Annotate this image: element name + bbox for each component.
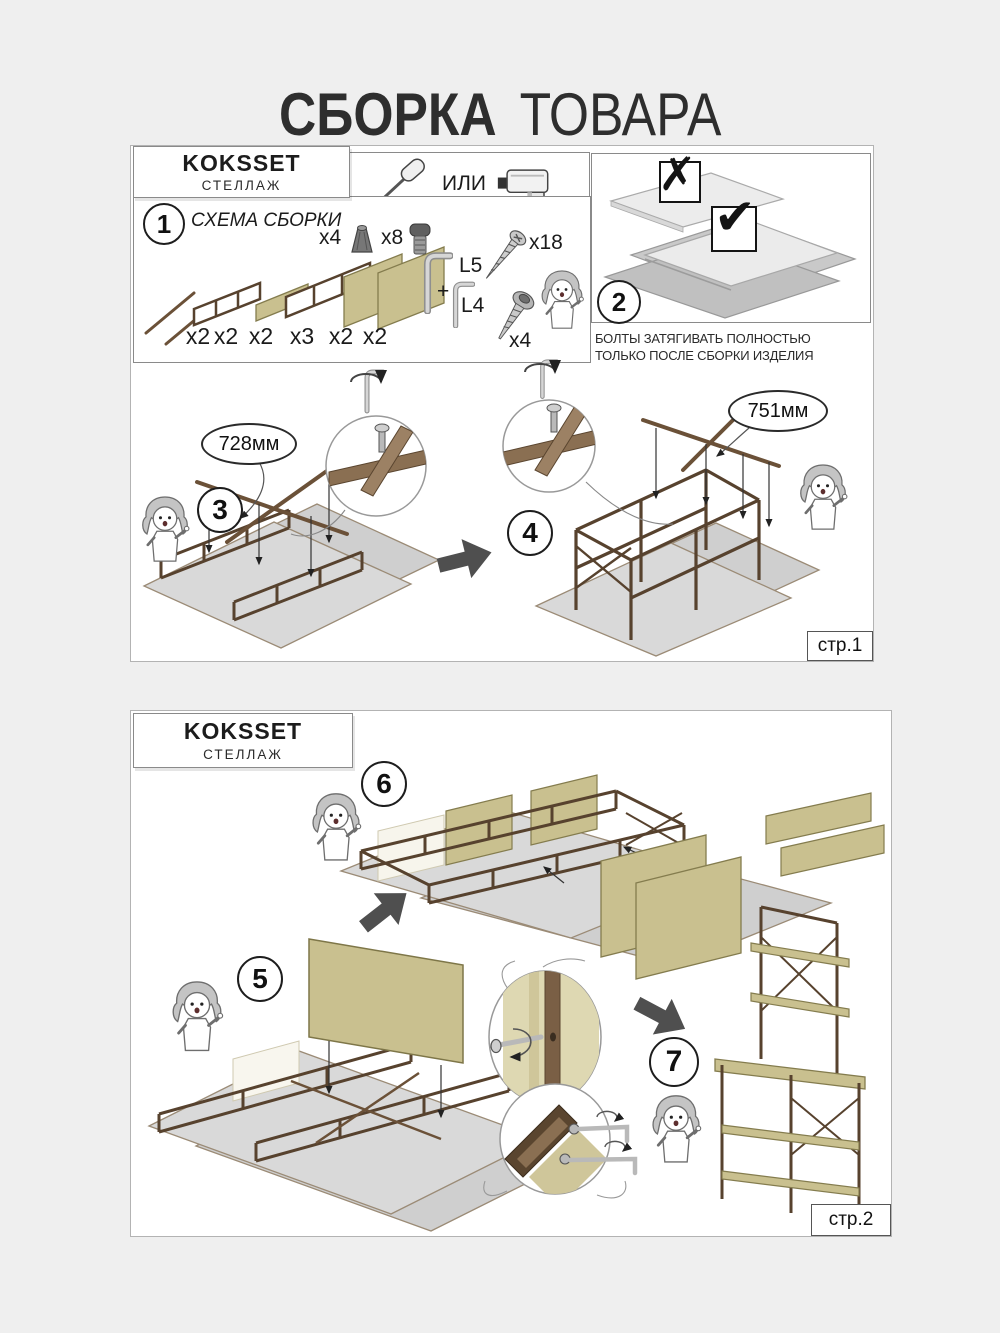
title-word-light: ТОВАРА: [519, 81, 721, 148]
step-number-4: 4: [507, 510, 553, 556]
instruction-page-2: KOKSSET СТЕЛЛАЖ 6: [130, 710, 892, 1237]
page-number-2: стр.2: [811, 1204, 891, 1236]
hex-key-l5-label: L5: [459, 254, 482, 278]
part-qty: x2: [186, 323, 210, 350]
check-mark: ✔: [714, 188, 756, 246]
product-name: KOKSSET: [184, 719, 302, 744]
warning-line-1: БОЛТЫ ЗАТЯГИВАТЬ ПОЛНОСТЬЮ: [595, 330, 869, 347]
plus-label: +: [437, 280, 449, 304]
magnifier-detail-corner: [477, 1081, 647, 1205]
part-qty: x2: [363, 323, 387, 350]
warning-text: БОЛТЫ ЗАТЯГИВАТЬ ПОЛНОСТЬЮ ТОЛЬКО ПОСЛЕ …: [595, 330, 869, 364]
screw-qty-label: x18: [529, 231, 563, 255]
step-number-6: 6: [361, 761, 407, 807]
product-header: KOKSSET СТЕЛЛАЖ: [133, 713, 353, 768]
socket-bolt-qty-label: x4: [509, 329, 531, 353]
product-header: KOKSSET СТЕЛЛАЖ: [133, 146, 350, 198]
assistant-character: [537, 268, 587, 340]
product-type: СТЕЛЛАЖ: [202, 178, 282, 193]
step-number-3: 3: [197, 487, 243, 533]
part-qty: x3: [290, 323, 314, 350]
step-number-2: 2: [597, 280, 641, 324]
warning-line-2: ТОЛЬКО ПОСЛЕ СБОРКИ ИЗДЕЛИЯ: [595, 347, 869, 364]
step-number-1: 1: [143, 203, 185, 245]
part-qty: x2: [329, 323, 353, 350]
measurement-callout-751: 751мм: [728, 390, 828, 432]
assistant-character: [137, 494, 193, 574]
measurement-callout-728: 728мм: [201, 423, 297, 465]
cone-foot-icon: [347, 222, 377, 256]
foot-qty-label: x4: [319, 226, 341, 250]
page-number-1: стр.1: [807, 631, 873, 661]
hex-key-l4-label: L4: [461, 294, 484, 318]
x-mark: ✗: [658, 147, 697, 201]
right-checkbox: ✔: [711, 206, 757, 252]
bolt-qty-label: x8: [381, 226, 403, 250]
assistant-character: [307, 791, 365, 873]
part-qty: x2: [214, 323, 238, 350]
product-name: KOKSSET: [182, 151, 300, 176]
step-number-5: 5: [237, 956, 283, 1002]
page-title: СБОРКА ТОВАРА: [0, 80, 1000, 149]
instruction-page-1: KOKSSET СТЕЛЛАЖ ИЛИ 1 СХЕМА СБОРКИ: [130, 145, 874, 662]
assistant-character: [167, 979, 227, 1064]
wrong-checkbox: ✗: [659, 161, 701, 203]
title-word-bold: СБОРКА: [279, 81, 497, 148]
assembly-diagram-step7-rack: [687, 893, 872, 1221]
or-label: ИЛИ: [442, 172, 486, 196]
assistant-character: [795, 462, 851, 542]
assembly-instruction-sheet: СБОРКА ТОВАРА KOKSSET СТЕЛЛАЖ ИЛИ: [0, 0, 1000, 1333]
step-number-7: 7: [649, 1037, 699, 1087]
assistant-character: [647, 1093, 705, 1175]
part-qty: x2: [249, 323, 273, 350]
product-type: СТЕЛЛАЖ: [203, 747, 283, 762]
